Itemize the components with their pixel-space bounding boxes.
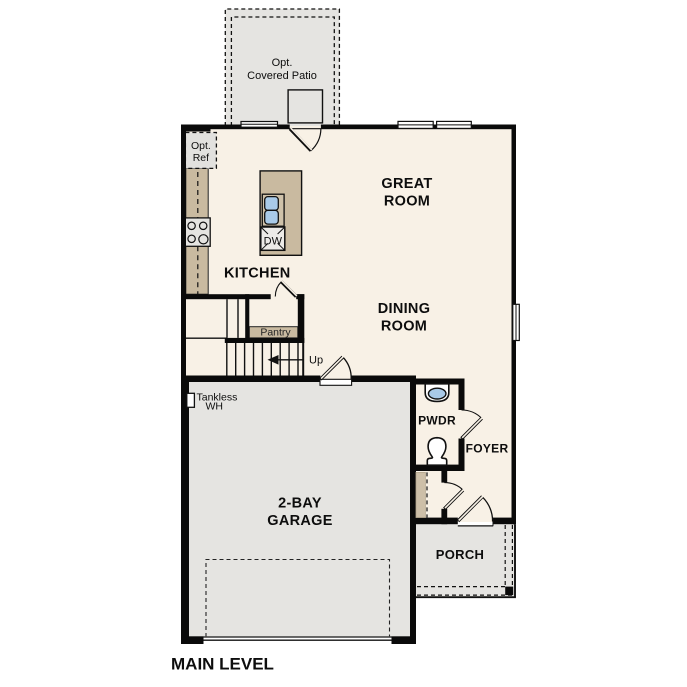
svg-text:DW: DW (264, 235, 283, 247)
svg-text:Pantry: Pantry (260, 327, 291, 339)
svg-text:Up: Up (309, 355, 323, 367)
svg-text:GARAGE: GARAGE (267, 513, 332, 529)
svg-text:2-BAY: 2-BAY (278, 496, 322, 512)
svg-text:DINING: DINING (378, 301, 431, 317)
svg-text:KITCHEN: KITCHEN (224, 266, 291, 282)
svg-text:Covered Patio: Covered Patio (247, 70, 317, 82)
svg-text:GREAT: GREAT (381, 176, 432, 192)
svg-text:WH: WH (206, 401, 224, 413)
svg-text:Opt.: Opt. (272, 57, 293, 69)
svg-text:FOYER: FOYER (466, 442, 509, 456)
svg-text:PWDR: PWDR (418, 414, 456, 428)
svg-text:ROOM: ROOM (384, 194, 430, 210)
svg-text:MAIN LEVEL: MAIN LEVEL (171, 654, 274, 673)
svg-text:ROOM: ROOM (381, 319, 427, 335)
svg-text:Ref: Ref (193, 152, 209, 164)
svg-text:Opt.: Opt. (191, 140, 211, 152)
svg-text:PORCH: PORCH (436, 547, 484, 562)
